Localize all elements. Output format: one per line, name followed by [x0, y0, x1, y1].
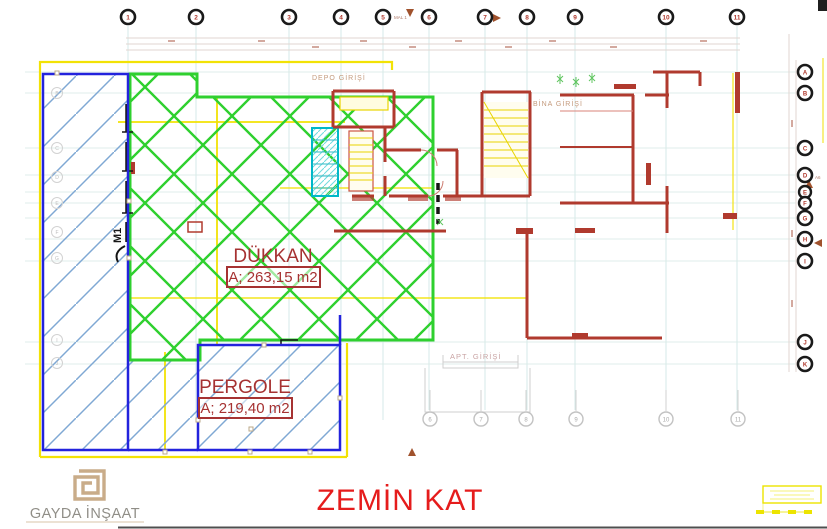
dukkan-label: DÜKKAN A; 263,15 m2: [227, 246, 320, 287]
svg-text:H: H: [803, 238, 807, 244]
page-title: ZEMİN KAT: [317, 484, 484, 517]
floor-plan-canvas: M1 MAL 1 A6 1 2 3 4 5 6 7 8 9: [0, 0, 827, 529]
title-block: [763, 486, 821, 510]
scale-bar: [756, 510, 812, 514]
svg-text:3: 3: [287, 15, 291, 22]
svg-text:F: F: [803, 202, 807, 208]
dukkan-name: DÜKKAN: [233, 246, 312, 267]
svg-text:11: 11: [734, 15, 741, 22]
corner-mark: [818, 0, 827, 11]
svg-text:A: A: [803, 71, 808, 77]
dukkan-green-hatch-area: [130, 74, 433, 360]
bina-girisi-label: BİNA GİRİŞİ: [533, 99, 583, 108]
apt-girisi-label: APT. GİRİŞİ: [450, 352, 501, 361]
svg-text:5: 5: [381, 15, 385, 22]
company-name: GAYDA İNŞAAT: [30, 504, 140, 522]
company-logo: GAYDA İNŞAAT: [26, 471, 144, 522]
grid-bubbles-top: 1 2 3 4 5 6 7 8 9 10 11: [121, 10, 744, 24]
wall-mark-m1: M1: [112, 228, 124, 243]
svg-text:F: F: [55, 230, 58, 236]
svg-text:10: 10: [662, 15, 670, 22]
svg-text:D: D: [803, 174, 808, 180]
svg-text:9: 9: [573, 15, 577, 22]
svg-text:4: 4: [339, 15, 343, 22]
svg-text:K: K: [803, 363, 808, 369]
svg-text:10: 10: [663, 418, 670, 424]
svg-text:B: B: [803, 92, 808, 98]
floor-plan-drawing: M1 MAL 1 A6 1 2 3 4 5 6 7 8 9: [0, 0, 827, 529]
pergole-label: PERGOLE A; 219,40 m2: [199, 377, 292, 418]
marker-label-mal1: MAL 1: [394, 15, 407, 20]
svg-text:C: C: [55, 146, 59, 152]
section-marker-triangles: [406, 9, 822, 456]
svg-text:C: C: [803, 147, 808, 153]
svg-text:G: G: [55, 256, 59, 262]
logo-spiral-icon: [75, 471, 104, 499]
svg-text:D: D: [55, 175, 59, 181]
svg-text:1: 1: [126, 15, 130, 22]
svg-text:2: 2: [194, 15, 198, 22]
yellow-detail-box: [340, 97, 388, 110]
svg-text:I: I: [56, 338, 57, 344]
svg-text:E: E: [803, 191, 807, 197]
svg-text:8: 8: [525, 15, 529, 22]
svg-text:7: 7: [483, 15, 487, 22]
bottom-rule: [118, 527, 827, 529]
grid-bubbles-right: A B C D E F G H I J K: [798, 65, 812, 371]
pergole-name: PERGOLE: [199, 377, 291, 398]
grid-bubbles-bottom: 6 7 8 9 10 11: [423, 390, 745, 426]
stair-core-a: [349, 131, 373, 191]
cyan-stair-area: [312, 128, 338, 196]
svg-text:G: G: [803, 217, 808, 223]
svg-text:J: J: [803, 341, 806, 347]
svg-text:11: 11: [735, 418, 742, 424]
marker-label-a6: A6: [815, 175, 821, 180]
dukkan-area: A; 263,15 m2: [228, 269, 317, 286]
stair-core-b: [484, 102, 528, 178]
svg-text:6: 6: [427, 15, 431, 22]
pergole-area: A; 219,40 m2: [200, 400, 289, 417]
depo-girisi-label: DEPO GİRİŞİ: [312, 73, 366, 82]
